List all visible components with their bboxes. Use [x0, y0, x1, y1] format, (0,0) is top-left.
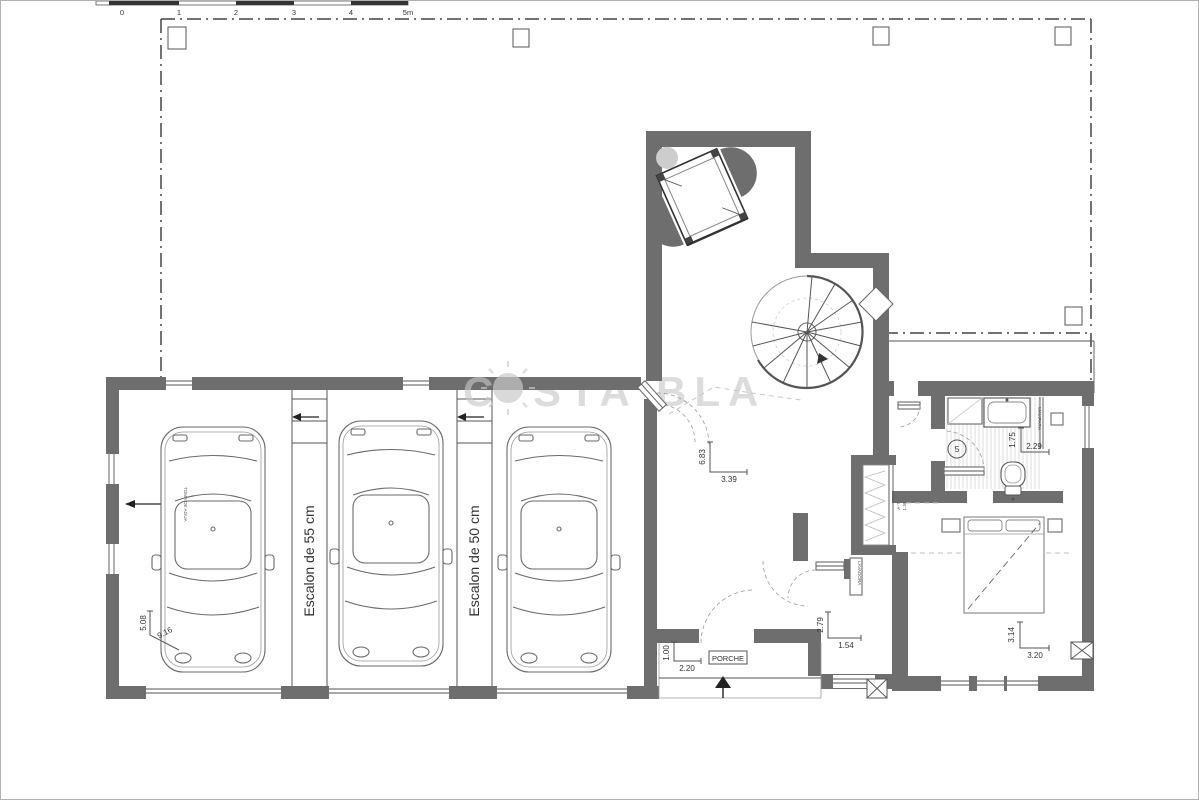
- car: [152, 427, 274, 672]
- scale-tick-5: 5m: [403, 8, 413, 17]
- entrance-arrow: [715, 676, 731, 698]
- car: [498, 427, 620, 672]
- bathroom: [944, 397, 1063, 501]
- dim-hall-width: 3.39: [721, 475, 737, 484]
- step-label-55: Escalon de 55 cm: [301, 505, 317, 616]
- boundary-marker: [1065, 307, 1082, 325]
- bathtub: [984, 398, 1030, 427]
- step-arrow: [292, 413, 484, 421]
- shower-screen-label: MAMPARA: [1037, 407, 1042, 431]
- scale-tick-4: 4: [349, 8, 353, 17]
- scale-tick-0: 0: [120, 8, 124, 17]
- door-leaf: [898, 402, 920, 409]
- scale-tick-2: 2: [234, 8, 238, 17]
- shower-screen: [1040, 397, 1063, 449]
- scale-tick-3: 3: [292, 8, 296, 17]
- appliance-label: LAVADORA: [857, 561, 862, 586]
- water-supply-label: TOMA DE AGUA: [183, 487, 188, 523]
- boundary-marker: [873, 27, 889, 45]
- bedroom: [911, 517, 1069, 613]
- text-labels: Escalon de 55 cm Escalon de 50 cm TOMA D…: [183, 407, 1042, 663]
- scale-bar: 0 1 2 3 4 5m: [96, 1, 413, 17]
- spiral-staircase: [751, 276, 893, 388]
- dim-bath-length: 1.75: [1008, 432, 1017, 448]
- floor-plan-drawing: 0 1 2 3 4 5m STA BLA: [1, 1, 1198, 799]
- porch-label: PORCHE: [712, 654, 744, 663]
- door-leaf: [816, 562, 844, 570]
- bed: [964, 517, 1044, 613]
- dim-vestibule-length: 2.79: [816, 617, 825, 633]
- dim-porch-width: 2.20: [679, 664, 695, 673]
- floor-plan: 0 1 2 3 4 5m STA BLA: [0, 0, 1199, 800]
- nightstand: [1048, 519, 1062, 532]
- dim-bedroom-length: 3.14: [1007, 627, 1016, 643]
- property-boundary: [161, 19, 1094, 393]
- dim-hall-length: 6.83: [698, 449, 707, 465]
- lobby: [898, 402, 920, 427]
- scale-tick-1: 1: [177, 8, 181, 17]
- boundary-marker: [168, 27, 186, 49]
- boundary-marker: [1055, 27, 1071, 45]
- dim-closet-width: 1.38: [902, 501, 907, 510]
- garage: [125, 390, 620, 686]
- door-leaf: [944, 467, 984, 475]
- dim-vestibule-width: 1.54: [838, 641, 854, 650]
- nightstand: [942, 519, 960, 532]
- vestibule: [788, 558, 862, 598]
- dim-garage-width: 5.08: [139, 615, 148, 631]
- dim-bath-width: 2.29: [1026, 442, 1042, 451]
- step-label-50: Escalon de 50 cm: [466, 505, 482, 616]
- room-number: 5: [955, 445, 960, 454]
- dim-closet-ref: A-7: [896, 502, 901, 510]
- car: [330, 421, 452, 666]
- dim-bedroom-width: 3.20: [1027, 651, 1043, 660]
- dim-porch-depth: 1.00: [662, 645, 671, 661]
- boundary-marker: [513, 29, 529, 47]
